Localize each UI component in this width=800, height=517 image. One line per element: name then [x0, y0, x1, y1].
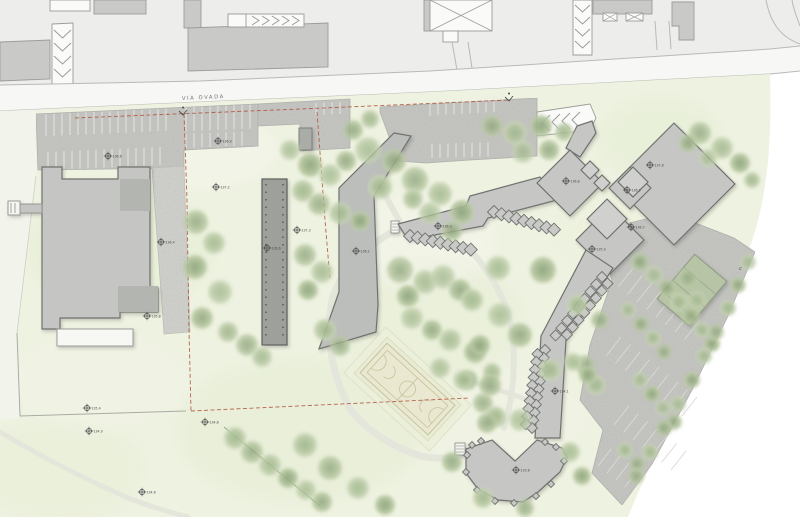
- tree: [330, 336, 350, 356]
- annex-outline-building: [57, 329, 133, 346]
- elevation-value: 136.9: [632, 188, 641, 192]
- tree: [730, 153, 750, 173]
- tree: [516, 499, 534, 517]
- tree: [314, 319, 336, 341]
- tree: [280, 140, 300, 160]
- tree: [509, 409, 531, 431]
- site-plan-canvas: VIA OVADA: [0, 0, 800, 517]
- tree: [560, 442, 580, 462]
- tree: [298, 280, 318, 300]
- tree: [682, 307, 700, 325]
- stairs-symbol-west: [391, 221, 399, 233]
- tree: [628, 468, 644, 484]
- north-building-1: [0, 40, 50, 81]
- elevation-value: 134.6: [147, 490, 156, 494]
- tree: [184, 210, 208, 234]
- north-building-3: [184, 0, 201, 28]
- tree: [347, 477, 369, 499]
- tree: [208, 280, 232, 304]
- tree: [355, 137, 381, 163]
- tree: [573, 467, 591, 485]
- tree: [656, 344, 672, 360]
- tree: [530, 257, 556, 283]
- tree: [350, 211, 370, 231]
- tree: [567, 295, 587, 315]
- elevation-value: 135.4: [92, 406, 101, 410]
- tree: [401, 307, 423, 329]
- tree: [191, 307, 213, 329]
- north-building-2: [94, 0, 146, 14]
- elevation-value: 136.4: [166, 240, 175, 244]
- tree: [439, 329, 461, 351]
- tree: [670, 396, 686, 412]
- elevation-value: 134.9: [94, 429, 103, 433]
- tree: [617, 442, 633, 458]
- tree: [368, 175, 392, 199]
- elevation-value: 136.3: [443, 224, 452, 228]
- tree: [684, 372, 700, 388]
- tree: [329, 202, 351, 224]
- tree: [278, 468, 298, 488]
- narrow-existing-building: [262, 179, 287, 345]
- curve-mark-label: c: [739, 266, 742, 272]
- tree: [539, 140, 559, 160]
- elevation-value: 137.8: [655, 163, 664, 167]
- elevation-value: 136.7: [636, 225, 645, 229]
- tree: [294, 244, 316, 266]
- tree: [311, 261, 333, 283]
- elevation-value: 137.2: [221, 185, 230, 189]
- ramp-chevrons-top: [228, 14, 304, 27]
- tree: [387, 257, 413, 283]
- tree: [259, 454, 281, 476]
- north-building-5: [593, 0, 652, 14]
- tree: [679, 134, 697, 152]
- tree: [293, 433, 317, 457]
- tree: [591, 311, 609, 329]
- tree: [477, 413, 497, 433]
- tree: [397, 285, 419, 307]
- ramp-chevrons-right: [573, 0, 592, 55]
- tree: [183, 255, 207, 279]
- tree: [512, 141, 534, 163]
- tree: [486, 256, 510, 280]
- tree: [694, 322, 710, 338]
- tree: [382, 149, 406, 173]
- tree: [298, 153, 322, 177]
- site-plan-drawing: VIA OVADA: [0, 0, 800, 517]
- elevation-value: 134.1: [560, 389, 569, 393]
- tree: [658, 279, 676, 297]
- parking-stall: [662, 444, 677, 463]
- elevation-value: 135.9: [597, 247, 606, 251]
- tree: [481, 115, 503, 137]
- tree: [720, 300, 736, 316]
- tree: [555, 123, 573, 141]
- tree: [430, 358, 450, 378]
- tree: [564, 353, 582, 371]
- tree: [670, 293, 688, 311]
- tree: [473, 488, 493, 508]
- tree: [296, 480, 316, 500]
- tree: [633, 316, 649, 332]
- tree: [530, 115, 552, 137]
- tree: [508, 323, 532, 347]
- tree: [252, 347, 272, 367]
- tree: [319, 164, 341, 186]
- tree: [740, 254, 756, 270]
- tree: [479, 374, 501, 396]
- elevation-value: 135.8: [152, 314, 161, 318]
- tree: [203, 232, 225, 254]
- tree: [631, 253, 649, 271]
- elevation-value: 136.2: [361, 249, 370, 253]
- tree: [579, 366, 597, 384]
- elevation-value: 134.8: [210, 420, 219, 424]
- tree: [218, 322, 238, 342]
- parking-stall: [671, 451, 686, 470]
- tree: [539, 359, 561, 381]
- elevation-value: 136.8: [571, 179, 580, 183]
- elevation-value: 136.6: [113, 154, 122, 158]
- tree: [422, 320, 442, 340]
- tree: [343, 120, 363, 140]
- north-outline-building: [50, 0, 90, 11]
- elevation-value: 136.6: [272, 246, 281, 250]
- tree: [655, 400, 671, 416]
- tree: [620, 302, 636, 318]
- tree: [656, 420, 672, 436]
- tree: [419, 202, 441, 224]
- tree: [318, 456, 342, 480]
- tree: [730, 277, 746, 293]
- tree: [645, 266, 663, 284]
- tree: [470, 335, 490, 355]
- tree: [336, 151, 356, 171]
- tree: [442, 452, 462, 472]
- tree: [312, 492, 332, 512]
- tree: [708, 324, 724, 340]
- tree: [699, 149, 717, 167]
- tree: [403, 189, 423, 209]
- tree: [461, 289, 483, 311]
- tree: [744, 172, 760, 188]
- tree: [402, 167, 428, 193]
- tree: [224, 427, 246, 449]
- elevation-value: 137.3: [302, 228, 311, 232]
- north-building-4: [188, 23, 328, 71]
- tree: [241, 441, 263, 463]
- tree: [450, 200, 474, 224]
- tree: [453, 370, 473, 390]
- tree: [632, 372, 648, 388]
- elevation-value: 136.9: [223, 139, 232, 143]
- tree: [642, 444, 658, 460]
- elevation-value: 133.8: [521, 468, 530, 472]
- tree: [645, 330, 661, 346]
- ramp-chevrons-left: [52, 23, 73, 85]
- tree: [488, 303, 512, 327]
- tree: [308, 193, 330, 215]
- tree: [375, 495, 395, 515]
- tree: [644, 386, 660, 402]
- kiosk-building: [299, 128, 312, 150]
- tree: [696, 348, 712, 364]
- tree: [361, 110, 379, 128]
